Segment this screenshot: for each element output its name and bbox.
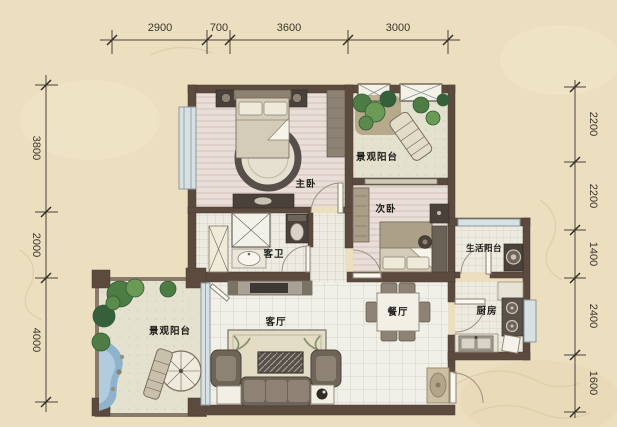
chair xyxy=(399,330,415,341)
entry-rug xyxy=(427,368,449,403)
label-kitchen: 厨房 xyxy=(476,305,497,317)
label-view-balcony-lower: 景观阳台 xyxy=(148,325,191,337)
dim-top-1: 2900 xyxy=(148,22,172,34)
side-table-right xyxy=(311,385,334,404)
kitchen-sink xyxy=(455,334,498,352)
dim-top-3: 3600 xyxy=(277,22,301,34)
bathroom-sink xyxy=(232,249,266,268)
dim-right-1: 2200 xyxy=(587,112,599,136)
label-guest-bath: 客卫 xyxy=(262,248,284,260)
desk xyxy=(432,226,447,272)
master-bed xyxy=(234,90,291,158)
coffee-table xyxy=(258,352,303,373)
chair xyxy=(419,302,430,322)
fridge xyxy=(502,335,521,354)
dim-right-2: 2200 xyxy=(587,184,599,208)
chair xyxy=(381,330,397,341)
chair xyxy=(399,283,415,294)
hall-opening-floor xyxy=(310,272,347,282)
entry-items xyxy=(427,368,449,403)
label-living-room: 客厅 xyxy=(264,316,286,328)
dim-right-4: 2400 xyxy=(587,304,599,328)
label-view-balcony-upper: 景观阳台 xyxy=(355,151,398,163)
sofa xyxy=(241,377,311,406)
dim-left-2: 2000 xyxy=(30,233,42,257)
floorplan-canvas: 2900 700 3600 3000 3800 2000 4000 2200 2… xyxy=(0,0,617,427)
second-bedroom-slider xyxy=(365,179,437,184)
kitchen-window xyxy=(524,300,536,342)
lamp xyxy=(317,389,328,400)
toilet xyxy=(286,214,308,243)
armchair-left xyxy=(211,350,241,387)
chair xyxy=(381,283,397,294)
side-table-left xyxy=(217,386,241,404)
washing-machine xyxy=(504,244,523,271)
master-wardrobe xyxy=(327,90,345,157)
tv-cabinet xyxy=(228,281,312,295)
stove xyxy=(502,298,523,336)
living-balcony-window xyxy=(201,283,210,405)
floorplan-svg: 2900 700 3600 3000 3800 2000 4000 2200 2… xyxy=(0,0,617,427)
dim-right-5: 1600 xyxy=(587,371,599,395)
master-dresser xyxy=(233,194,294,208)
label-dining-room: 餐厅 xyxy=(386,306,408,318)
chair xyxy=(366,302,377,322)
shower xyxy=(232,213,270,247)
master-bay-window xyxy=(179,107,196,189)
utility-balcony-items xyxy=(504,244,523,271)
dim-right-3: 1400 xyxy=(587,242,599,266)
dim-top-2: 700 xyxy=(210,22,228,34)
label-second-bedroom: 次卧 xyxy=(375,203,396,215)
hall-cabinet xyxy=(209,226,228,272)
utility-balcony-window xyxy=(458,219,520,226)
label-master-bedroom: 主卧 xyxy=(295,178,316,190)
dim-left-3: 4000 xyxy=(30,328,42,352)
dim-left-1: 3800 xyxy=(30,136,42,160)
armchair-right xyxy=(311,350,341,387)
dim-top-4: 3000 xyxy=(386,22,410,34)
tv xyxy=(250,283,288,293)
label-utility-balcony: 生活阳台 xyxy=(466,243,502,253)
